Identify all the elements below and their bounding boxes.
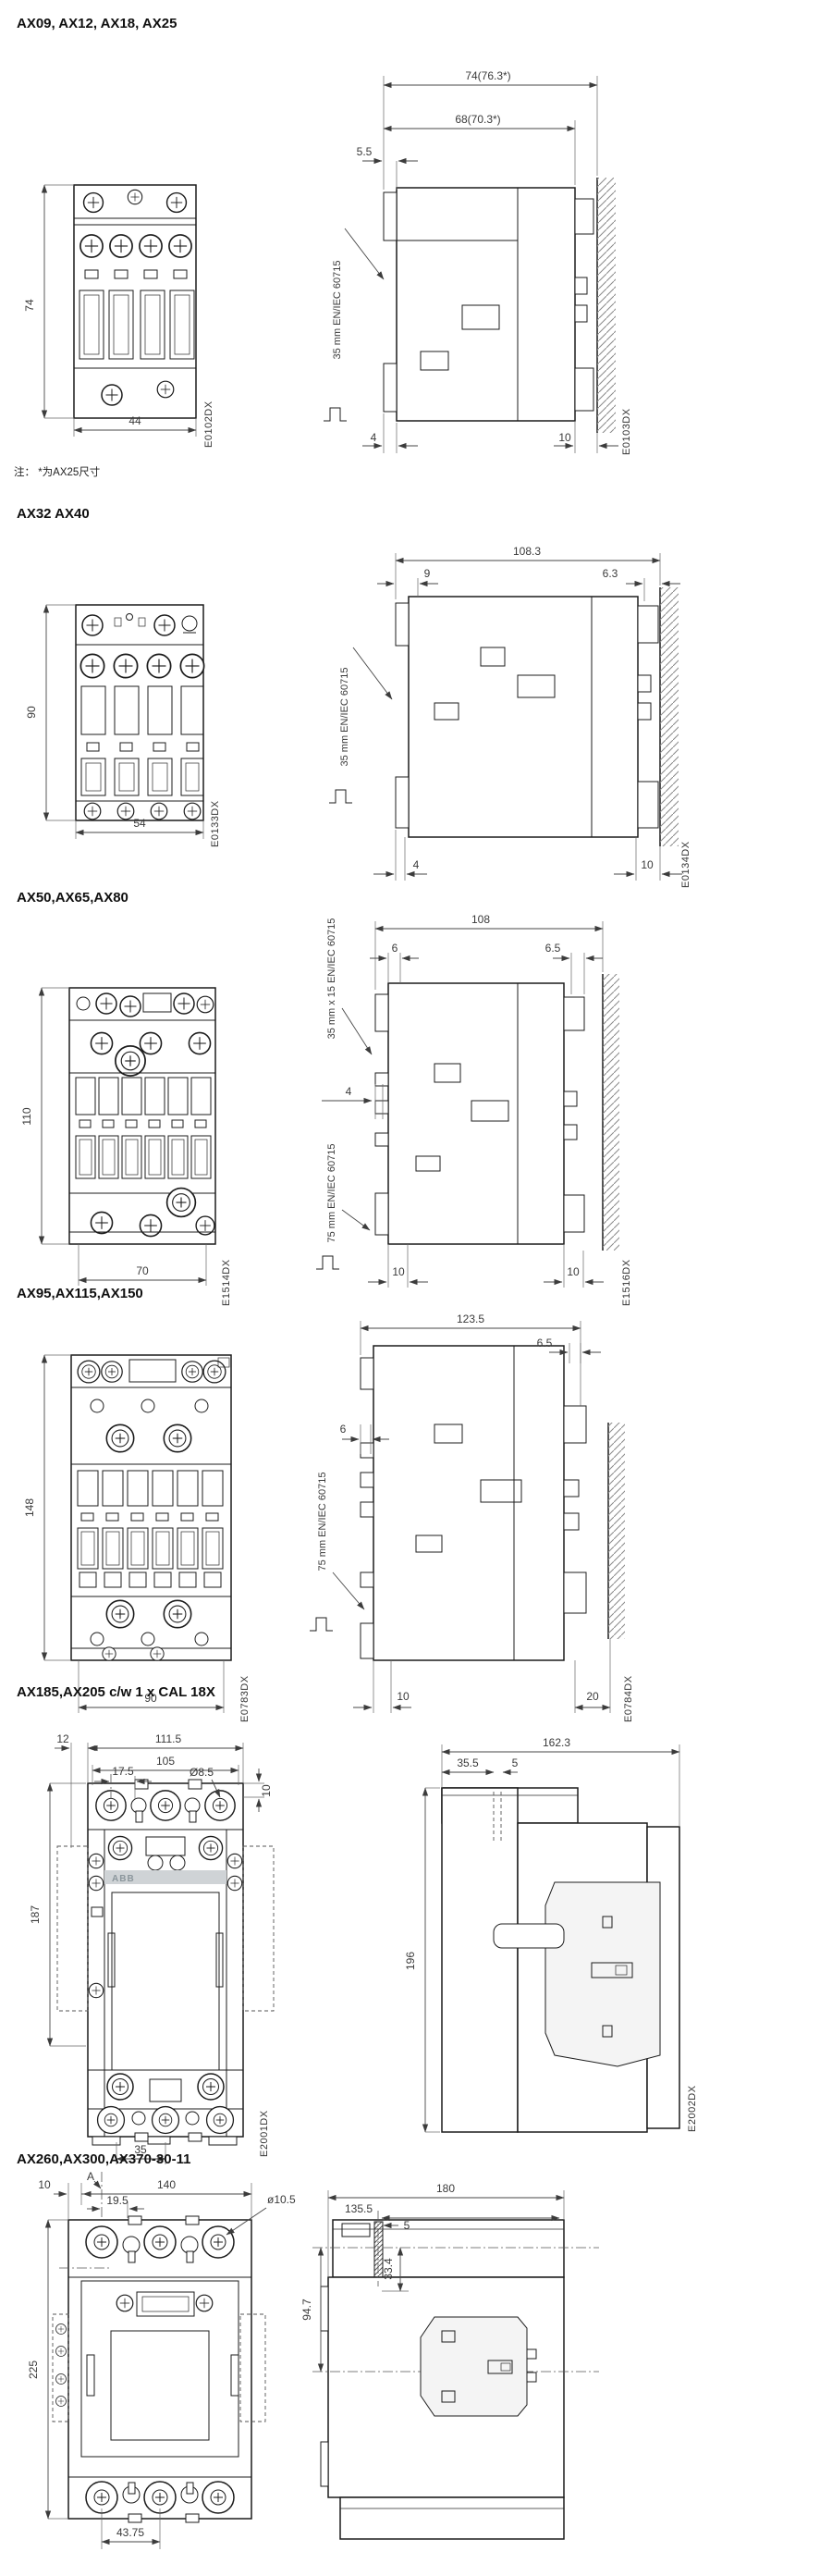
dim-front-height: 74 <box>23 299 36 312</box>
dim-screw-gap: 5 <box>512 1756 519 1769</box>
dim-plate-height: 33.4 <box>382 2258 395 2280</box>
aux-lever <box>494 1924 564 1948</box>
dim-front-height: 110 <box>20 1107 33 1125</box>
side-view-ax09: 74(76.3*) 68(70.3*) 5.5 35 mm EN/IEC 607… <box>324 69 632 455</box>
dim-inner-width: 105 <box>156 1755 175 1768</box>
dim-hole-pitch: 17.5 <box>112 1765 134 1778</box>
dim-plate-to-back: 135.5 <box>345 2202 373 2215</box>
section-ax50-ax80: AX50,AX65,AX80 110 <box>17 890 632 1306</box>
dim-bottom-right: 10 <box>641 858 654 871</box>
section-ax260-ax370: AX260,AX300,AX370-30-11 A <box>17 2151 599 2549</box>
dim-accessory-offset: 12 <box>56 1732 69 1745</box>
dim-side-depth: 162.3 <box>543 1736 570 1749</box>
drawing-code: E0133DX <box>210 800 221 847</box>
side-view-ax32: 108.3 9 6.3 35 mm EN/IEC 60715 4 10 E013… <box>329 545 691 888</box>
section-ax185-ax205: AX185,AX205 c/w 1 x CAL 18X ABB <box>17 1684 698 2164</box>
wall-hatch <box>597 178 616 433</box>
din-rail-bottom-label: 75 mm EN/IEC 60715 <box>326 1144 337 1243</box>
front-view-ax95: 148 90 E0783DX <box>23 1355 251 1722</box>
dim-hole-diameter: ø10.5 <box>267 2193 296 2206</box>
accessory-zone-left <box>53 2314 68 2422</box>
dim-bottom-right: 20 <box>586 1690 599 1703</box>
dim-edge-offset: 10 <box>38 2178 51 2191</box>
din-rail-top-label: 35 mm x 15 EN/IEC 60715 <box>326 918 337 1040</box>
dim-side-left: 9 <box>424 567 431 580</box>
dim-bottom-left: 10 <box>397 1690 410 1703</box>
din-rail-label: 75 mm EN/IEC 60715 <box>317 1473 328 1571</box>
dim-plate-thickness: 5 <box>404 2219 410 2232</box>
dim-bottom-right: 10 <box>558 431 571 444</box>
front-view-ax260: A <box>27 2170 296 2549</box>
dim-side-outer-width: 108 <box>471 913 490 926</box>
dim-side-right: 6.5 <box>537 1337 553 1350</box>
front-view-ax09: 74 44 E0102DX <box>23 185 214 448</box>
din-rail-icon <box>316 1256 339 1269</box>
dim-bottom-left: 10 <box>392 1265 405 1278</box>
wall-hatch <box>660 587 679 846</box>
dim-side-depth: 180 <box>436 2182 455 2195</box>
dimension-drawings-svg: AX09, AX12, AX18, AX25 74 44 E0102DX <box>0 0 832 2571</box>
din-rail-icon <box>324 408 347 421</box>
side-view-ax95: 123.5 6.5 6 75 mm EN/IEC 60715 10 20 E07… <box>310 1313 634 1722</box>
front-view-ax32: 90 54 E0133DX <box>25 605 221 847</box>
dim-hole-pitch: 19.5 <box>106 2194 128 2207</box>
dim-front-height: 90 <box>25 706 38 719</box>
front-view-ax50: 110 70 E1514DX <box>20 988 232 1306</box>
din-rail-icon <box>329 790 352 803</box>
dim-front-width: 44 <box>128 414 141 427</box>
dim-side-inner-width: 68(70.3*) <box>455 113 500 126</box>
dim-bottom-pitch: 43.75 <box>116 2526 144 2539</box>
dim-outer-width: 111.5 <box>155 1732 182 1745</box>
wall-hatch <box>603 974 619 1251</box>
dim-side-left: 6 <box>392 942 398 955</box>
catalog-dimension-page: AX09, AX12, AX18, AX25 74 44 E0102DX <box>0 0 832 2571</box>
side-view-ax185: 162.3 35.5 5 196 E2002DX <box>404 1736 698 2132</box>
dim-clip-offset: 5.5 <box>357 145 373 158</box>
din-rail-icon <box>310 1618 333 1631</box>
drawing-code: E0784DX <box>623 1675 634 1722</box>
dim-side-height: 196 <box>404 1952 417 1970</box>
dim-top-offset: 10 <box>260 1784 273 1797</box>
drawing-code: E2001DX <box>259 2110 270 2157</box>
drawing-code: E2002DX <box>687 2085 698 2132</box>
dim-side-outer-width: 74(76.3*) <box>465 69 510 82</box>
dim-front-height: 187 <box>29 1905 42 1924</box>
section-title: AX32 AX40 <box>17 506 90 522</box>
aux-contact-block <box>545 1882 660 2066</box>
dim-side-right: 6.3 <box>603 567 618 580</box>
dim-bottom-right: 10 <box>567 1265 580 1278</box>
side-view-ax260: 180 135.5 5 94.7 33.4 <box>300 2182 599 2539</box>
wall-hatch <box>608 1423 625 1639</box>
dim-front-height: 225 <box>27 2360 40 2379</box>
drawing-code: E0102DX <box>203 401 214 448</box>
aux-contact-block <box>421 2317 527 2416</box>
side-view-ax50: 108 6 6.5 35 mm x 15 EN/IEC 60715 4 75 m… <box>316 913 632 1306</box>
din-rail-label: 35 mm EN/IEC 60715 <box>332 261 343 360</box>
dim-mid: 4 <box>346 1085 352 1098</box>
brand-logo: ABB <box>112 1874 135 1884</box>
dim-front-width: 70 <box>136 1264 149 1277</box>
dim-side-right: 6.5 <box>545 942 561 955</box>
drawing-code: E1514DX <box>221 1259 232 1306</box>
section-ax95-ax150: AX95,AX115,AX150 <box>17 1286 634 1722</box>
section-ax32-ax40: AX32 AX40 90 54 E0133DX <box>17 506 691 888</box>
dim-bottom-left: 4 <box>371 431 377 444</box>
drawing-code: E0783DX <box>239 1675 251 1722</box>
section-title: AX185,AX205 c/w 1 x CAL 18X <box>17 1684 215 1700</box>
dim-hole-diameter: Ø8.5 <box>190 1766 214 1779</box>
dim-side-outer-width: 123.5 <box>457 1313 484 1325</box>
drawing-code: E0103DX <box>621 408 632 455</box>
dim-outer-width: 140 <box>157 2178 176 2191</box>
section-title: AX09, AX12, AX18, AX25 <box>17 16 177 31</box>
section-ax09-ax25: AX09, AX12, AX18, AX25 74 44 E0102DX <box>14 16 632 478</box>
dim-screw-offset: 35.5 <box>457 1756 479 1769</box>
section-title: AX260,AX300,AX370-30-11 <box>17 2151 190 2167</box>
section-title: AX50,AX65,AX80 <box>17 890 128 906</box>
dim-axis-height: 94.7 <box>300 2299 313 2321</box>
drawing-code: E0134DX <box>680 841 691 888</box>
dim-front-height: 148 <box>23 1498 36 1517</box>
dim-front-width: 54 <box>133 817 146 830</box>
section-title: AX95,AX115,AX150 <box>17 1286 143 1301</box>
footnote: 注： *为AX25尺寸 <box>14 465 100 478</box>
dim-bottom-left: 4 <box>413 858 420 871</box>
dim-side-outer-width: 108.3 <box>513 545 541 558</box>
front-view-ax185: ABB 12 <box>29 1732 274 2164</box>
dim-side-left: 6 <box>340 1423 347 1436</box>
din-rail-label: 35 mm EN/IEC 60715 <box>339 668 350 767</box>
section-marker: A <box>87 2170 94 2183</box>
drawing-code: E1516DX <box>621 1259 632 1306</box>
